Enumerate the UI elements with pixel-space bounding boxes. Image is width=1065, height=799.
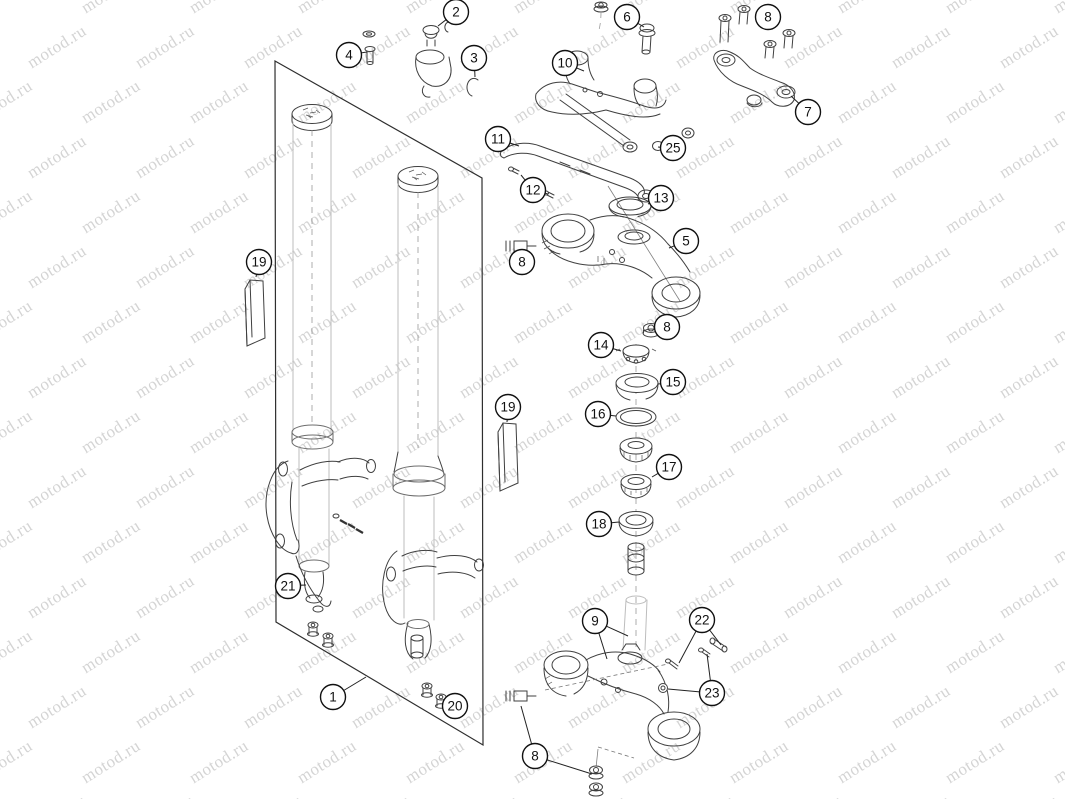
callout-14[interactable]: 14 (589, 333, 614, 358)
callout-11[interactable]: 11 (486, 127, 511, 152)
leader-line-23 (707, 654, 710, 681)
callout-number-17: 17 (661, 460, 676, 475)
callout-21[interactable]: 21 (276, 574, 301, 599)
exploded-parts-diagram: 2436810711251213519881415191617182192212… (0, 0, 1065, 799)
leader-line-8-4 (521, 706, 532, 744)
callout-13[interactable]: 13 (649, 186, 674, 211)
leader-line-8-4 (547, 760, 592, 774)
leader-line-4 (361, 52, 367, 53)
callout-18[interactable]: 18 (587, 512, 612, 537)
callout-number-20: 20 (447, 699, 462, 714)
callout-19-2[interactable]: 19 (496, 395, 521, 420)
callout-number-2: 2 (452, 5, 460, 20)
callout-number-9: 9 (591, 614, 599, 629)
callout-number-3: 3 (470, 51, 478, 66)
leader-line-18 (611, 522, 619, 523)
callout-number-5: 5 (682, 234, 690, 249)
steering-bearing-stack (616, 344, 658, 648)
leader-line-22 (679, 631, 696, 663)
callout-20[interactable]: 20 (443, 694, 468, 719)
callout-number-16: 16 (590, 407, 605, 422)
leader-line-12 (521, 175, 525, 180)
callout-number-19-2: 19 (500, 400, 515, 415)
leader-line-1 (344, 677, 366, 691)
callout-22[interactable]: 22 (690, 608, 715, 633)
handlebar-mount-bracket (714, 50, 795, 106)
callout-7[interactable]: 7 (796, 100, 821, 125)
sticker-left (245, 280, 265, 346)
callout-8-2[interactable]: 8 (510, 250, 535, 275)
callout-number-4: 4 (345, 48, 353, 63)
callout-number-12: 12 (525, 183, 540, 198)
callout-number-1: 1 (329, 690, 337, 705)
steering-top-small-parts (363, 22, 478, 97)
callout-17[interactable]: 17 (657, 455, 682, 480)
steering-stem-cap (609, 197, 651, 217)
callout-number-11: 11 (491, 132, 505, 147)
callout-9[interactable]: 9 (583, 609, 608, 634)
callout-number-25: 25 (665, 141, 680, 156)
fork-assembly-panel (275, 61, 483, 745)
callout-number-22: 22 (694, 613, 709, 628)
leader-line-9 (599, 633, 607, 659)
callout-number-6: 6 (623, 10, 631, 25)
callout-number-14: 14 (593, 338, 609, 353)
callout-23[interactable]: 23 (700, 681, 725, 706)
upper-triple-clamp (542, 214, 700, 317)
callout-number-23: 23 (704, 686, 719, 701)
leader-line-10 (577, 68, 585, 71)
callout-8-3[interactable]: 8 (655, 315, 680, 340)
callout-number-19: 19 (251, 255, 266, 270)
callouts-layer: 2436810711251213519881415191617182192212… (247, 0, 821, 769)
parts-diagram-page: motod.rumotod.rumotod.rumotod.rumotod.ru… (0, 0, 1065, 799)
callout-12[interactable]: 12 (521, 178, 546, 203)
leader-line-23 (668, 689, 700, 692)
callout-6[interactable]: 6 (615, 5, 640, 30)
callout-number-7: 7 (804, 105, 812, 120)
callout-number-21: 21 (280, 579, 295, 594)
callout-3[interactable]: 3 (462, 46, 487, 71)
callout-number-15: 15 (665, 375, 680, 390)
callout-8[interactable]: 8 (756, 5, 781, 30)
right-fork-leg (383, 167, 484, 660)
leader-line-17 (652, 473, 658, 477)
callout-10[interactable]: 10 (553, 51, 578, 76)
left-fork-leg (266, 105, 375, 613)
callout-8-4[interactable]: 8 (523, 744, 548, 769)
callout-25[interactable]: 25 (661, 136, 686, 161)
callout-number-13: 13 (653, 191, 668, 206)
callout-1[interactable]: 1 (321, 685, 346, 710)
callout-number-8-4: 8 (531, 749, 539, 764)
leader-line-16 (610, 415, 616, 416)
sticker-right (498, 423, 518, 491)
callout-15[interactable]: 15 (661, 370, 686, 395)
callout-16[interactable]: 16 (586, 402, 611, 427)
callout-number-8: 8 (764, 10, 772, 25)
callout-number-8-2: 8 (518, 255, 526, 270)
callout-5[interactable]: 5 (674, 229, 699, 254)
callout-2[interactable]: 2 (444, 0, 469, 25)
callout-number-10: 10 (557, 56, 572, 71)
callout-leader-lines (256, 20, 799, 774)
callout-19[interactable]: 19 (247, 250, 272, 275)
callout-4[interactable]: 4 (337, 43, 362, 68)
callout-number-18: 18 (591, 517, 606, 532)
callout-number-8-3: 8 (663, 320, 671, 335)
